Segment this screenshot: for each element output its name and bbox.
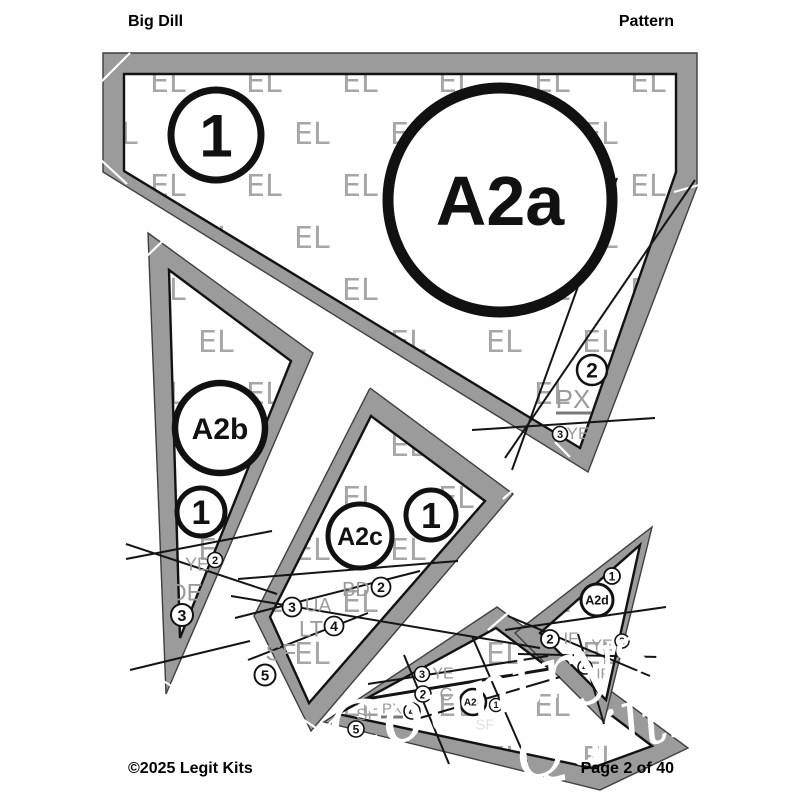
piece-badge-a2d: A2d bbox=[581, 584, 613, 616]
copyright-text: ©2025 Legit Kits bbox=[128, 760, 253, 778]
fabric-code-SF: SF bbox=[266, 639, 297, 666]
svg-text:1: 1 bbox=[199, 103, 232, 170]
svg-text:1: 1 bbox=[421, 495, 441, 536]
pattern-page: Big Dill Pattern EL EL bbox=[0, 0, 800, 800]
svg-text:3: 3 bbox=[557, 429, 563, 441]
step-circle-1: 1 bbox=[177, 488, 225, 536]
svg-text:A2b: A2b bbox=[192, 413, 249, 446]
svg-text:YE: YE bbox=[567, 424, 590, 443]
step-circle-1: 1 bbox=[604, 568, 620, 584]
svg-text:3: 3 bbox=[288, 599, 296, 615]
svg-text:1: 1 bbox=[192, 494, 211, 532]
step-circle-2: 2 bbox=[372, 578, 391, 597]
svg-text:A2d: A2d bbox=[585, 594, 609, 608]
step-circle-3: 3 bbox=[171, 604, 193, 626]
svg-text:SF: SF bbox=[266, 639, 297, 666]
step-circle-2: 2 bbox=[208, 553, 223, 568]
fabric-code-UA: UA bbox=[305, 596, 332, 617]
svg-text:LT: LT bbox=[299, 617, 323, 642]
step-circle-1: 1 bbox=[406, 490, 456, 540]
piece-badge-a2b: A2b bbox=[175, 383, 265, 473]
svg-text:A2a: A2a bbox=[436, 162, 565, 240]
page-footer: ©2025 Legit Kits Page 2 of 40 bbox=[128, 760, 674, 778]
svg-text:2: 2 bbox=[212, 555, 218, 567]
fabric-code-BD: BD bbox=[342, 579, 370, 601]
svg-text:3: 3 bbox=[178, 608, 187, 625]
svg-text:4: 4 bbox=[330, 618, 338, 634]
fabric-code-DE: DE bbox=[169, 579, 202, 606]
fabric-code-YE: YE bbox=[567, 424, 590, 443]
fabric-code-LT: LT bbox=[299, 617, 323, 642]
step-circle-5: 5 bbox=[255, 665, 276, 686]
svg-text:YE: YE bbox=[185, 554, 209, 574]
svg-text:UA: UA bbox=[305, 596, 332, 617]
step-circle-1: 1 bbox=[171, 90, 261, 180]
fabric-code-PX: PX bbox=[556, 384, 591, 414]
svg-text:2: 2 bbox=[586, 360, 598, 383]
page-number: Page 2 of 40 bbox=[581, 760, 674, 778]
pattern-diagram: EL EL bbox=[0, 0, 800, 800]
svg-text:PX: PX bbox=[556, 384, 591, 414]
step-circle-3: 3 bbox=[283, 598, 302, 617]
fabric-code-YE: YE bbox=[185, 554, 209, 574]
step-circle-4: 4 bbox=[325, 617, 344, 636]
piece-badge-a2a: A2a bbox=[388, 88, 612, 312]
step-circle-3: 3 bbox=[553, 427, 568, 442]
piece-badge-a2c: A2c bbox=[328, 504, 392, 568]
svg-text:DE: DE bbox=[169, 579, 202, 606]
svg-text:1: 1 bbox=[609, 569, 616, 583]
svg-text:5: 5 bbox=[261, 667, 269, 684]
svg-text:2: 2 bbox=[377, 579, 385, 595]
svg-text:A2c: A2c bbox=[337, 523, 383, 551]
svg-text:BD: BD bbox=[342, 579, 370, 601]
step-circle-2: 2 bbox=[577, 355, 607, 385]
